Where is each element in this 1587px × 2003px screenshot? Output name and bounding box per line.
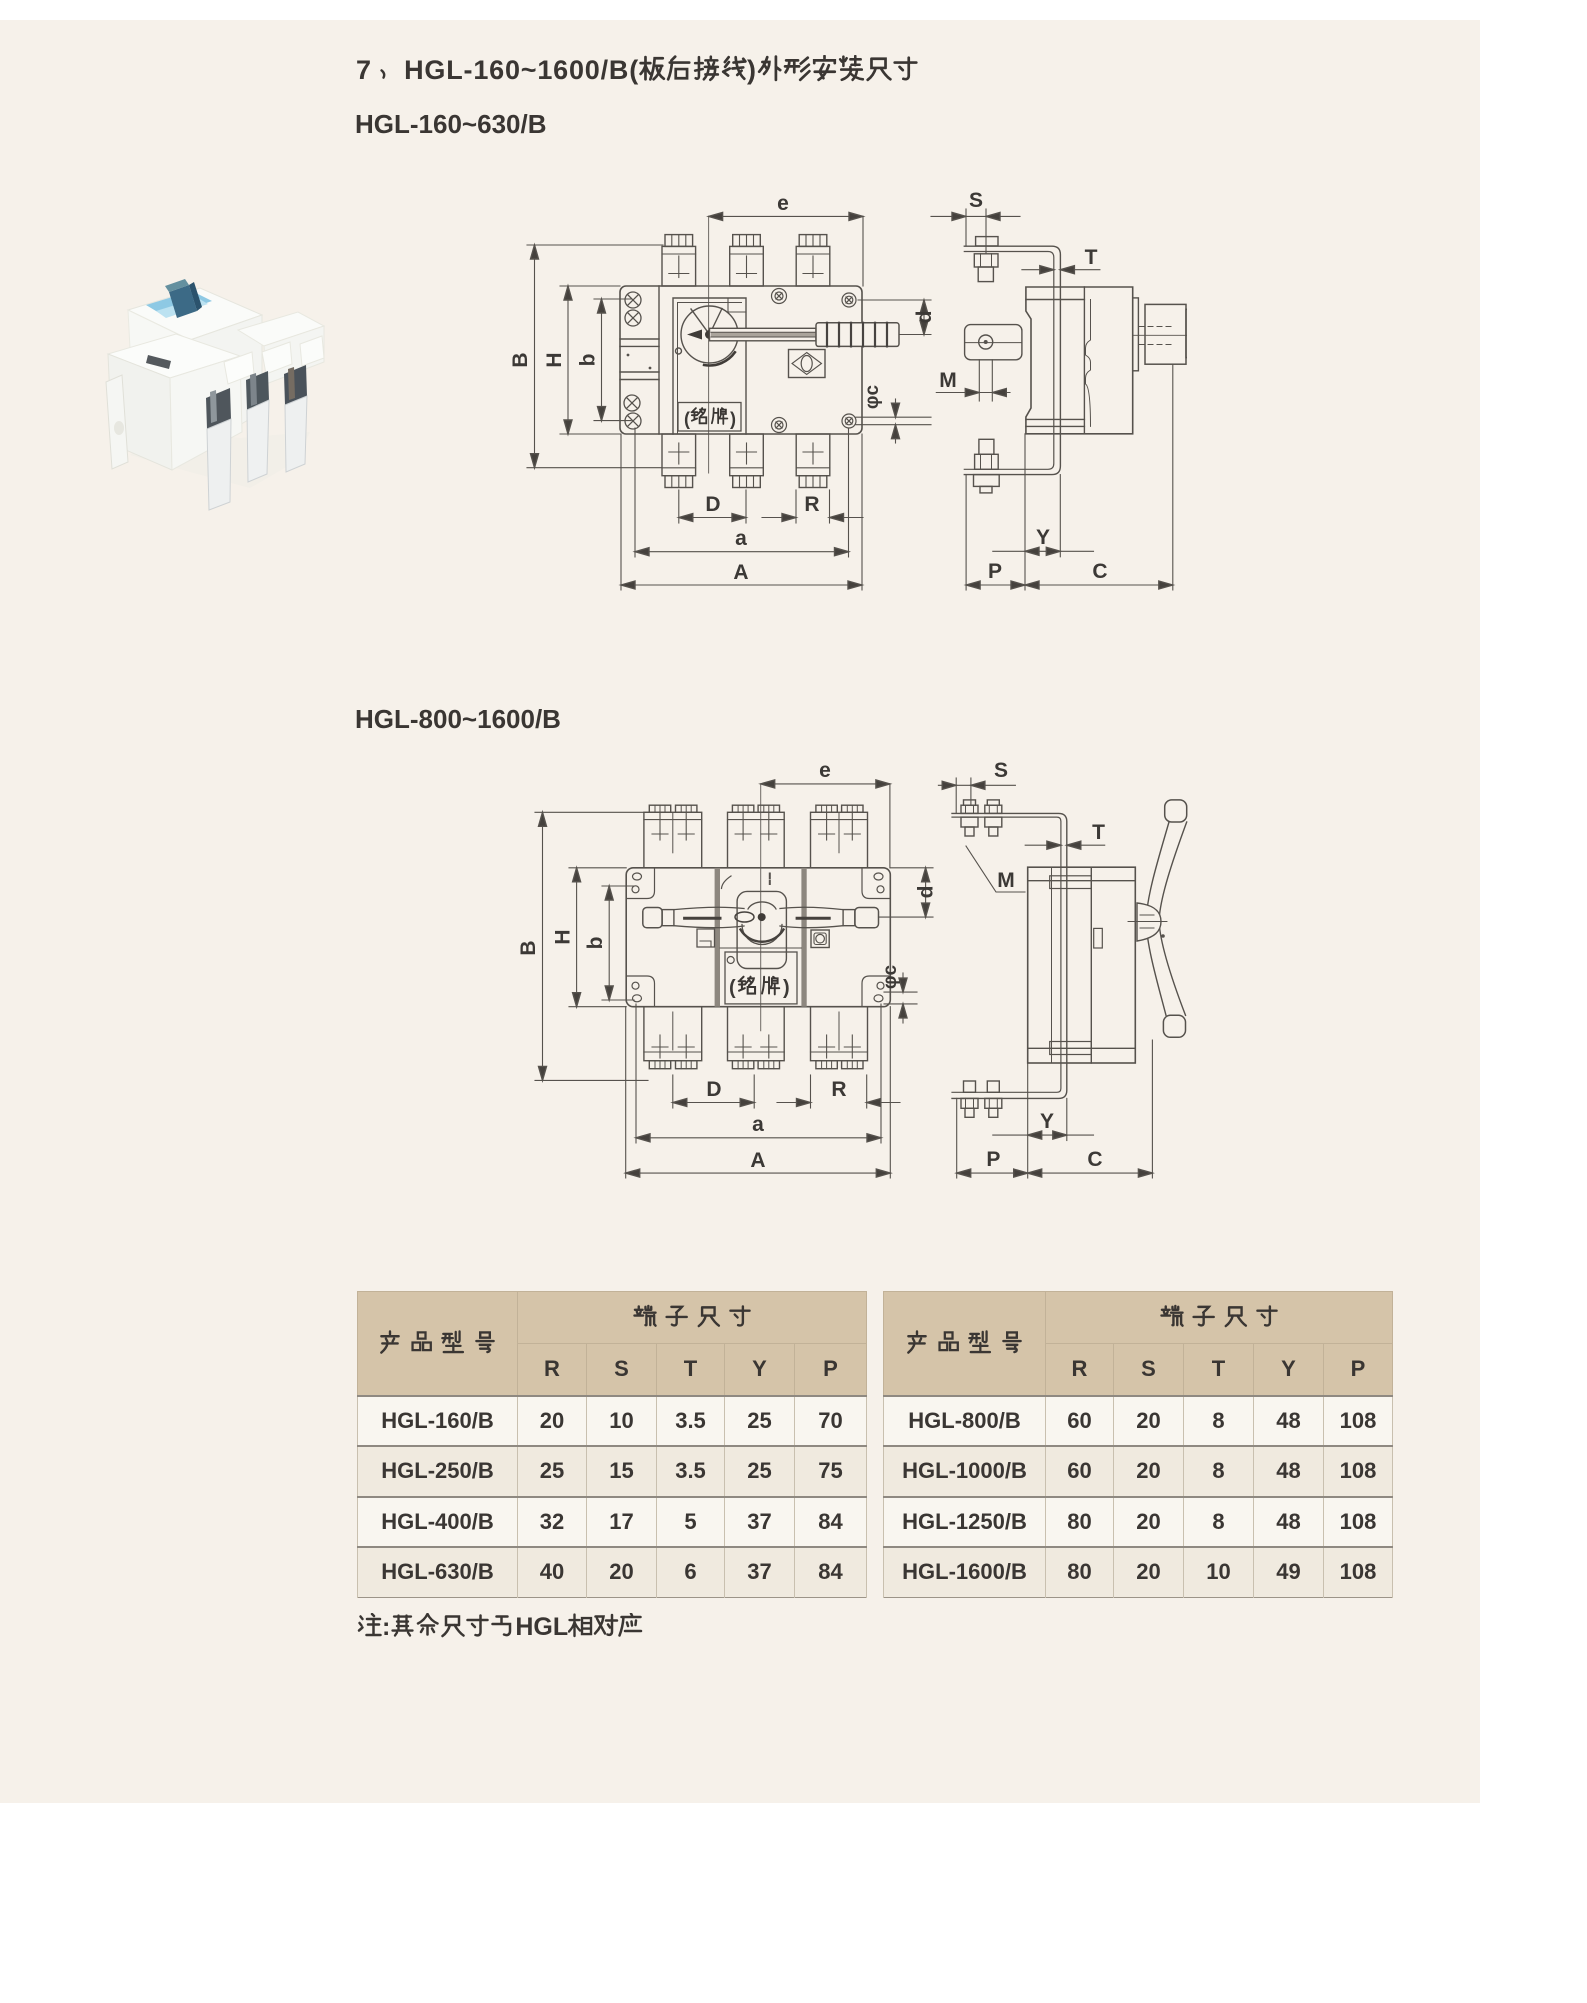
svg-text:(: (	[729, 977, 736, 999]
svg-text:T: T	[1092, 821, 1105, 844]
svg-text:(: (	[684, 409, 690, 429]
svg-text:a: a	[752, 1113, 764, 1136]
svg-text:D: D	[706, 1078, 721, 1101]
svg-text:S: S	[969, 189, 983, 212]
svg-text:D: D	[705, 493, 720, 516]
svg-text:H: H	[552, 929, 575, 944]
svg-text:B: B	[520, 940, 540, 955]
svg-text:C: C	[1092, 560, 1107, 583]
svg-text:Y: Y	[1036, 526, 1050, 549]
svg-text:R: R	[804, 493, 819, 516]
svg-text:P: P	[986, 1148, 1000, 1171]
svg-text:B: B	[509, 352, 532, 367]
svg-text:A: A	[750, 1149, 765, 1172]
svg-text:φc: φc	[880, 964, 901, 989]
svg-text:): )	[783, 977, 790, 999]
svg-text:): )	[730, 409, 736, 429]
svg-text:A: A	[733, 561, 748, 584]
svg-text:a: a	[735, 527, 747, 550]
svg-text:M: M	[997, 869, 1015, 892]
svg-text:R: R	[831, 1078, 846, 1101]
svg-text:b: b	[584, 937, 607, 950]
svg-text:Y: Y	[1040, 1110, 1054, 1133]
svg-text:b: b	[577, 354, 600, 367]
svg-text:C: C	[1087, 1148, 1102, 1171]
svg-text:φc: φc	[862, 384, 883, 409]
svg-text:e: e	[777, 192, 789, 215]
svg-text:T: T	[1085, 246, 1098, 269]
svg-text:H: H	[543, 352, 566, 367]
svg-text:P: P	[988, 560, 1002, 583]
svg-text:S: S	[994, 759, 1008, 782]
svg-text:e: e	[819, 759, 831, 782]
svg-text:M: M	[939, 369, 957, 392]
